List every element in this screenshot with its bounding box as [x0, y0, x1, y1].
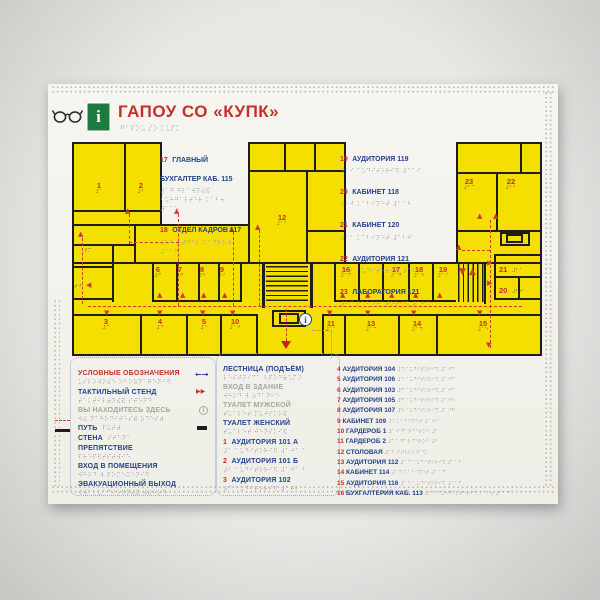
- glasses-icon: [52, 106, 84, 128]
- plan-room-label: 7⠼⠛: [172, 266, 188, 279]
- wall: [256, 316, 258, 354]
- route-path: [82, 238, 83, 304]
- route-arrow-up: ▲: [255, 224, 260, 231]
- tactile-mnemonic-sign-photo: i ГАПОУ СО «КУПК» ⠛⠁⠏⠕⠥ ⠎⠕ ⠅⠥⠏⠅: [0, 0, 600, 600]
- info-icon: i: [86, 102, 111, 132]
- route-arrow-down: ▼: [486, 342, 491, 349]
- wall: [344, 316, 346, 354]
- tactile-stand-marker-icon: ▶▶: [196, 389, 205, 395]
- route-arrow-up: ▲: [493, 213, 498, 220]
- wall: [186, 316, 188, 354]
- plan-room-label: 5⠼⠑: [194, 318, 214, 331]
- plan-room-label: 22⠼⠃⠃: [500, 178, 522, 191]
- plan-room-label: 6⠼⠋: [150, 266, 166, 279]
- side-entrance-icon: [506, 234, 523, 243]
- wall: [494, 254, 542, 256]
- plan-room-label: 3⠼⠉: [96, 318, 116, 331]
- wall: [314, 142, 316, 172]
- room-list-item: 7 АУДИТОРИЯ 105 ⠼⠛ ⠁⠥⠙⠊⠞⠕⠗⠊⠫ ⠼⠁⠚⠑: [337, 396, 510, 406]
- plan-annotations-right: 19 АУДИТОРИЯ 119⠼⠁⠊ ⠁⠥⠙⠊⠞⠕⠗⠊⠫ ⠼⠁⠁⠊ 20 КА…: [340, 147, 454, 313]
- route-path: [259, 230, 260, 306]
- span-arrows-icon: ←→: [195, 371, 208, 379]
- plan-room-label: 20 ⠼⠃⠚: [499, 281, 523, 297]
- stairs-down-arrow-icon: ▼: [459, 268, 466, 277]
- wall: [398, 316, 400, 354]
- plan-room-label: 10⠼⠁⠚: [224, 318, 246, 331]
- route-arrow-up: ▲: [456, 244, 461, 251]
- wall: [74, 266, 114, 268]
- annotation-entry: 19 АУДИТОРИЯ 119⠼⠁⠊ ⠁⠥⠙⠊⠞⠕⠗⠊⠫ ⠼⠁⠁⠊: [340, 147, 454, 176]
- annotation-entry: 23 ЛАБОРАТОРИЯ 121⠼⠃⠉ ⠇⠁⠃⠕⠗⠁⠞⠕⠗⠊⠫ ⠼⠁⠃⠁: [340, 280, 454, 309]
- wall: [496, 172, 498, 232]
- room-list-item: 5 АУДИТОРИЯ 106 ⠼⠑ ⠁⠥⠙⠊⠞⠕⠗⠊⠫ ⠼⠁⠚⠋: [337, 375, 510, 385]
- room-list-item: 8 АУДИТОРИЯ 107 ⠼⠓ ⠁⠥⠙⠊⠞⠕⠗⠊⠫ ⠼⠁⠚⠛: [337, 406, 510, 416]
- plan-annotations-left: 17 ГЛАВНЫЙ БУХГАЛТЕР КАБ. 115 ⠼⠁⠛ ⠛⠇⠁⠺⠝⠮…: [160, 148, 244, 261]
- route-arrow-up: ▲: [180, 292, 185, 299]
- route-arrow-up: ▲: [201, 292, 206, 299]
- route-path: [462, 250, 490, 251]
- route-arrow-right: ▶: [487, 260, 492, 267]
- route-arrow-up: ▲: [157, 292, 162, 299]
- plan-room-label: 23⠼⠃⠉: [458, 178, 480, 191]
- room-list-item: 15 АУДИТОРИЯ 116 ⠼⠁⠑ ⠁⠥⠙⠊⠞⠕⠗⠊⠫ ⠼⠁⠁⠋: [337, 479, 510, 489]
- wall: [74, 298, 114, 300]
- annotation-entry: 21 КАБИНЕТ 120⠼⠃⠁ ⠅⠁⠃⠊⠝⠑⠞ ⠼⠁⠃⠚: [340, 213, 454, 242]
- annotation-entry: 17 ГЛАВНЫЙ БУХГАЛТЕР КАБ. 115 ⠼⠁⠛ ⠛⠇⠁⠺⠝⠮…: [160, 148, 244, 214]
- route-arrow-down: ▼: [157, 310, 162, 317]
- wall: [72, 210, 162, 212]
- route-sample-icon: [55, 420, 70, 421]
- wall: [494, 254, 496, 300]
- plan-room-label: 4⠼⠙: [150, 318, 170, 331]
- plan-wc-braille-mark: ⠞⠍: [84, 249, 92, 254]
- route-arrow-up: ▲: [78, 231, 83, 238]
- plan-room-label: 14⠼⠁⠙: [406, 320, 428, 333]
- evacuation-exit-icon: [281, 341, 291, 349]
- route-arrow-right: ▶: [487, 280, 492, 287]
- wall: [484, 262, 486, 304]
- dot-border-right: [545, 92, 553, 488]
- wall: [520, 142, 522, 174]
- wall: [140, 316, 142, 354]
- page-title: ГАПОУ СО «КУПК»: [118, 102, 279, 122]
- plan-room-label: 9⠼⠊: [214, 266, 230, 279]
- wall: [152, 300, 242, 302]
- staircase-icon: [266, 266, 308, 304]
- title-braille: ⠛⠁⠏⠕⠥ ⠎⠕ ⠅⠥⠏⠅: [120, 125, 181, 133]
- room-list-item: 10 ГАРДЕРОБ 1 ⠼⠁⠚ ⠛⠁⠗⠙⠑⠗⠕⠃ ⠼⠁: [337, 427, 510, 437]
- route-arrow-up: ▲: [125, 208, 130, 215]
- route-arrow-down: ▼: [200, 310, 205, 317]
- plan-wc-braille-mark: ⠞⠚: [74, 285, 82, 290]
- plan-room-label: 13⠼⠁⠉: [360, 320, 382, 333]
- plan-room-label: 15⠼⠁⠑: [472, 320, 494, 333]
- room-list: 4 АУДИТОРИЯ 104 ⠼⠙ ⠁⠥⠙⠊⠞⠕⠗⠊⠫ ⠼⠁⠚⠙ 5 АУДИ…: [337, 365, 510, 499]
- route-arrow-up: ▲: [222, 292, 227, 299]
- wall: [124, 142, 126, 212]
- wall: [306, 172, 308, 264]
- room-list-item: 11 ГАРДЕРОБ 2 ⠼⠁⠁ ⠛⠁⠗⠙⠑⠗⠕⠃ ⠼⠃: [337, 437, 510, 447]
- building-entrance-icon: [279, 313, 299, 324]
- route-arrow-down: ▼: [327, 310, 332, 317]
- wall: [310, 262, 313, 308]
- route-arrow-up: ▲: [477, 213, 482, 220]
- route-path: [129, 214, 130, 244]
- plan-room-label: 21 ⠼⠃⠁: [499, 260, 523, 276]
- route-arrow-left: ◀: [86, 282, 91, 289]
- room-list-item: 12 СТОЛОВАЯ ⠼⠁⠃ ⠎⠞⠕⠇⠕⠺⠁⠫: [337, 448, 510, 458]
- plan-block-center: [248, 142, 346, 264]
- room-list-braille: ⠼⠉ ⠁⠥⠙⠊⠞⠕⠗⠊⠫ ⠼⠁⠚⠃: [223, 479, 300, 495]
- room-list-item: 6 АУДИТОРИЯ 103 ⠼⠋ ⠁⠥⠙⠊⠞⠕⠗⠊⠫ ⠼⠁⠚⠉: [337, 386, 510, 396]
- route-arrow-down: ▼: [230, 310, 235, 317]
- room-list-item: 16 БУХГАЛТЕРИЯ КАБ. 113 ⠼⠁⠋ ⠃⠥⠓⠛⠁⠇⠞⠑⠗⠊⠫ …: [337, 489, 510, 499]
- room-list-item: 14 КАБИНЕТ 114 ⠼⠁⠙ ⠅⠁⠃⠊⠝⠑⠞ ⠼⠁⠁⠙: [337, 468, 510, 478]
- stairs-up-arrow-icon: ▲: [469, 268, 476, 277]
- you-are-here-icon: i: [299, 313, 312, 326]
- route-path: [286, 309, 287, 341]
- room-list-item: 4 АУДИТОРИЯ 104 ⠼⠙ ⠁⠥⠙⠊⠞⠕⠗⠊⠫ ⠼⠁⠚⠙: [337, 365, 510, 375]
- plan-room-label: 1⠼⠁: [90, 182, 108, 195]
- annotation-entry: 18 ОТДЕЛ КАДРОВ 117 ⠼⠁⠓ ⠕⠞⠙⠑⠇ ⠅⠁⠙⠗⠕⠺ ⠼⠁⠁…: [160, 218, 244, 256]
- room-list-item: 9 КАБИНЕТ 109 ⠼⠊ ⠅⠁⠃⠊⠝⠑⠞ ⠼⠁⠚⠊: [337, 417, 510, 427]
- legend-item-braille: ⠪⠺⠁⠅⠥⠁⠉⠊⠕⠝⠝⠮⠯ ⠺⠮⠓⠕⠙: [78, 483, 167, 499]
- route-arrow-down: ▼: [477, 310, 482, 317]
- route-path: [88, 306, 522, 307]
- wall: [220, 316, 222, 354]
- wall-sample-icon: [197, 426, 207, 430]
- wall: [240, 262, 242, 302]
- wall: [248, 170, 346, 172]
- route-arrow-down: ▼: [104, 310, 109, 317]
- annotation-entry: 22 АУДИТОРИЯ 121⠼⠃⠃ ⠁⠥⠙⠊⠞⠕⠗⠊⠫ ⠼⠁⠃⠁: [340, 247, 454, 276]
- wall: [262, 262, 265, 308]
- wall: [322, 314, 542, 316]
- plan-room-label: 12⠼⠁⠃: [272, 214, 292, 227]
- wall: [436, 316, 438, 354]
- plan-room-label: 8⠼⠓: [194, 266, 210, 279]
- annotation-entry: 20 КАБИНЕТ 118⠼⠃⠚ ⠅⠁⠃⠊⠝⠑⠞ ⠼⠁⠁⠓: [340, 180, 454, 209]
- wall: [74, 244, 134, 246]
- room-list-item: 13 АУДИТОРИЯ 112 ⠼⠁⠉ ⠁⠥⠙⠊⠞⠕⠗⠊⠫ ⠼⠁⠁⠃: [337, 458, 510, 468]
- wall: [112, 246, 114, 302]
- plan-room-label: 11⠼⠁⠁: [320, 320, 342, 333]
- you-are-here-legend-icon: i: [199, 406, 208, 415]
- dot-border-left: [54, 300, 60, 486]
- wall-sample-line-icon: [55, 429, 70, 432]
- wall: [284, 142, 286, 172]
- wall: [456, 172, 542, 174]
- dot-border-top: [52, 86, 554, 95]
- plan-room-label: 2⠼⠃: [132, 182, 150, 195]
